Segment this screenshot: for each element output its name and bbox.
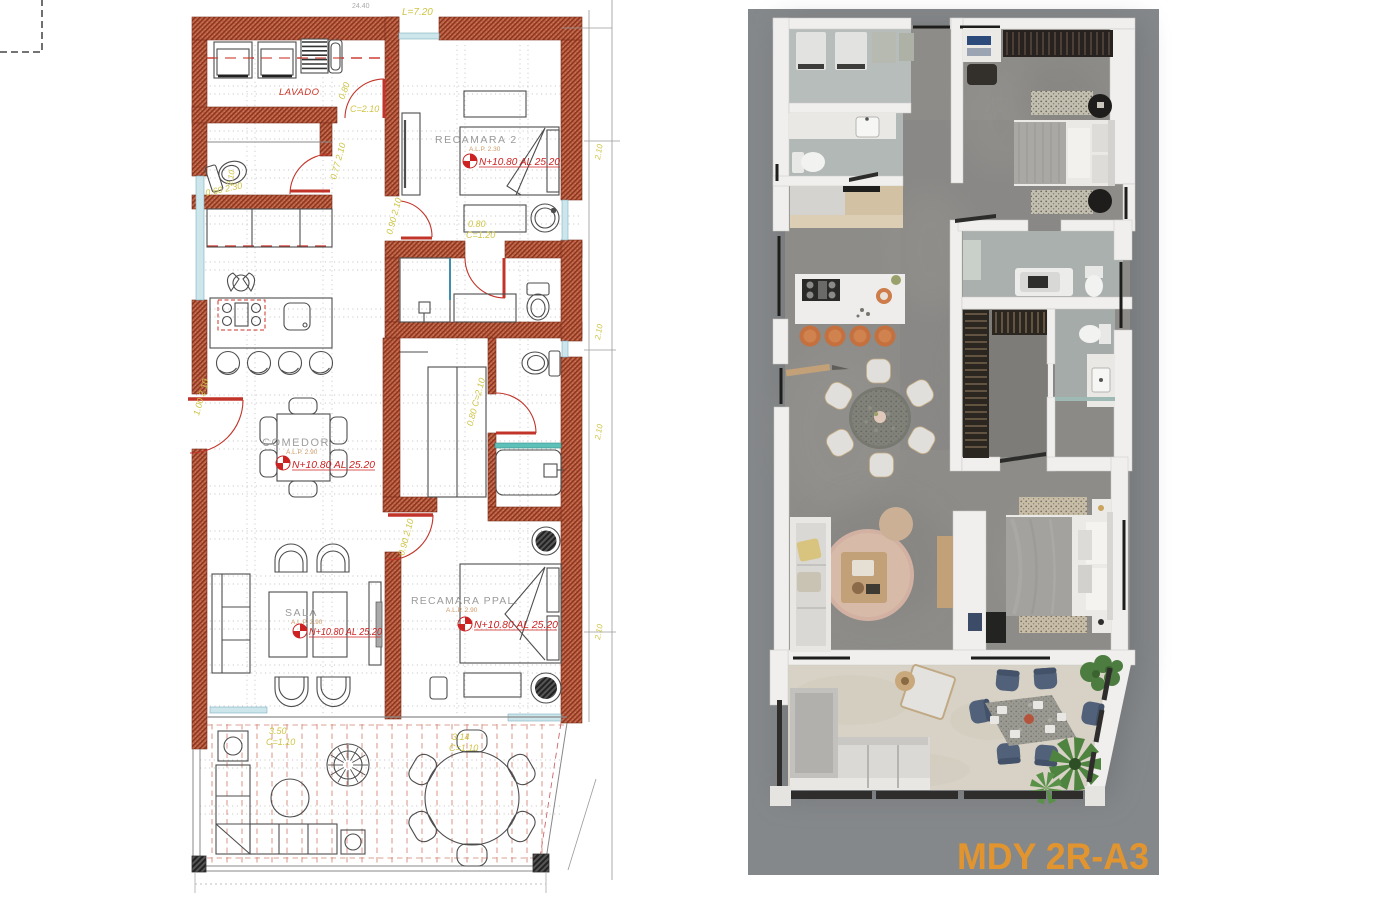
- svg-text:N+10.80 AL 25.20: N+10.80 AL 25.20: [474, 619, 558, 631]
- svg-text:C=1.10: C=1.10: [266, 737, 295, 747]
- svg-text:24.40: 24.40: [352, 3, 370, 10]
- svg-text:A.L.P. 2.90: A.L.P. 2.90: [286, 449, 318, 456]
- svg-text:C=1.20: C=1.20: [466, 230, 495, 240]
- svg-text:N+10.80 AL 25.20: N+10.80 AL 25.20: [292, 459, 375, 471]
- svg-text:N+10.80 AL 25.20: N+10.80 AL 25.20: [309, 626, 382, 638]
- svg-text:SALA: SALA: [285, 607, 318, 619]
- svg-text:L=7.20: L=7.20: [402, 7, 433, 18]
- svg-text:RECAMARA 2: RECAMARA 2: [435, 134, 518, 146]
- svg-text:C=2.10: C=2.10: [350, 104, 379, 114]
- svg-text:MDY 2R-A3: MDY 2R-A3: [957, 836, 1149, 877]
- svg-text:LAVADO: LAVADO: [279, 87, 320, 98]
- svg-text:3.14: 3.14: [452, 732, 470, 742]
- svg-text:3.50: 3.50: [269, 726, 287, 736]
- svg-text:A.L.P. 2.30: A.L.P. 2.30: [469, 146, 501, 153]
- svg-text:RECAMARA PPAL.: RECAMARA PPAL.: [411, 595, 519, 607]
- svg-text:N+10.80 AL 25.20: N+10.80 AL 25.20: [479, 156, 560, 168]
- svg-text:A.L.P. 2.90: A.L.P. 2.90: [446, 607, 478, 614]
- svg-text:C=1.10: C=1.10: [449, 743, 478, 753]
- svg-text:COMEDOR: COMEDOR: [262, 437, 330, 449]
- svg-text:0.80: 0.80: [468, 219, 486, 229]
